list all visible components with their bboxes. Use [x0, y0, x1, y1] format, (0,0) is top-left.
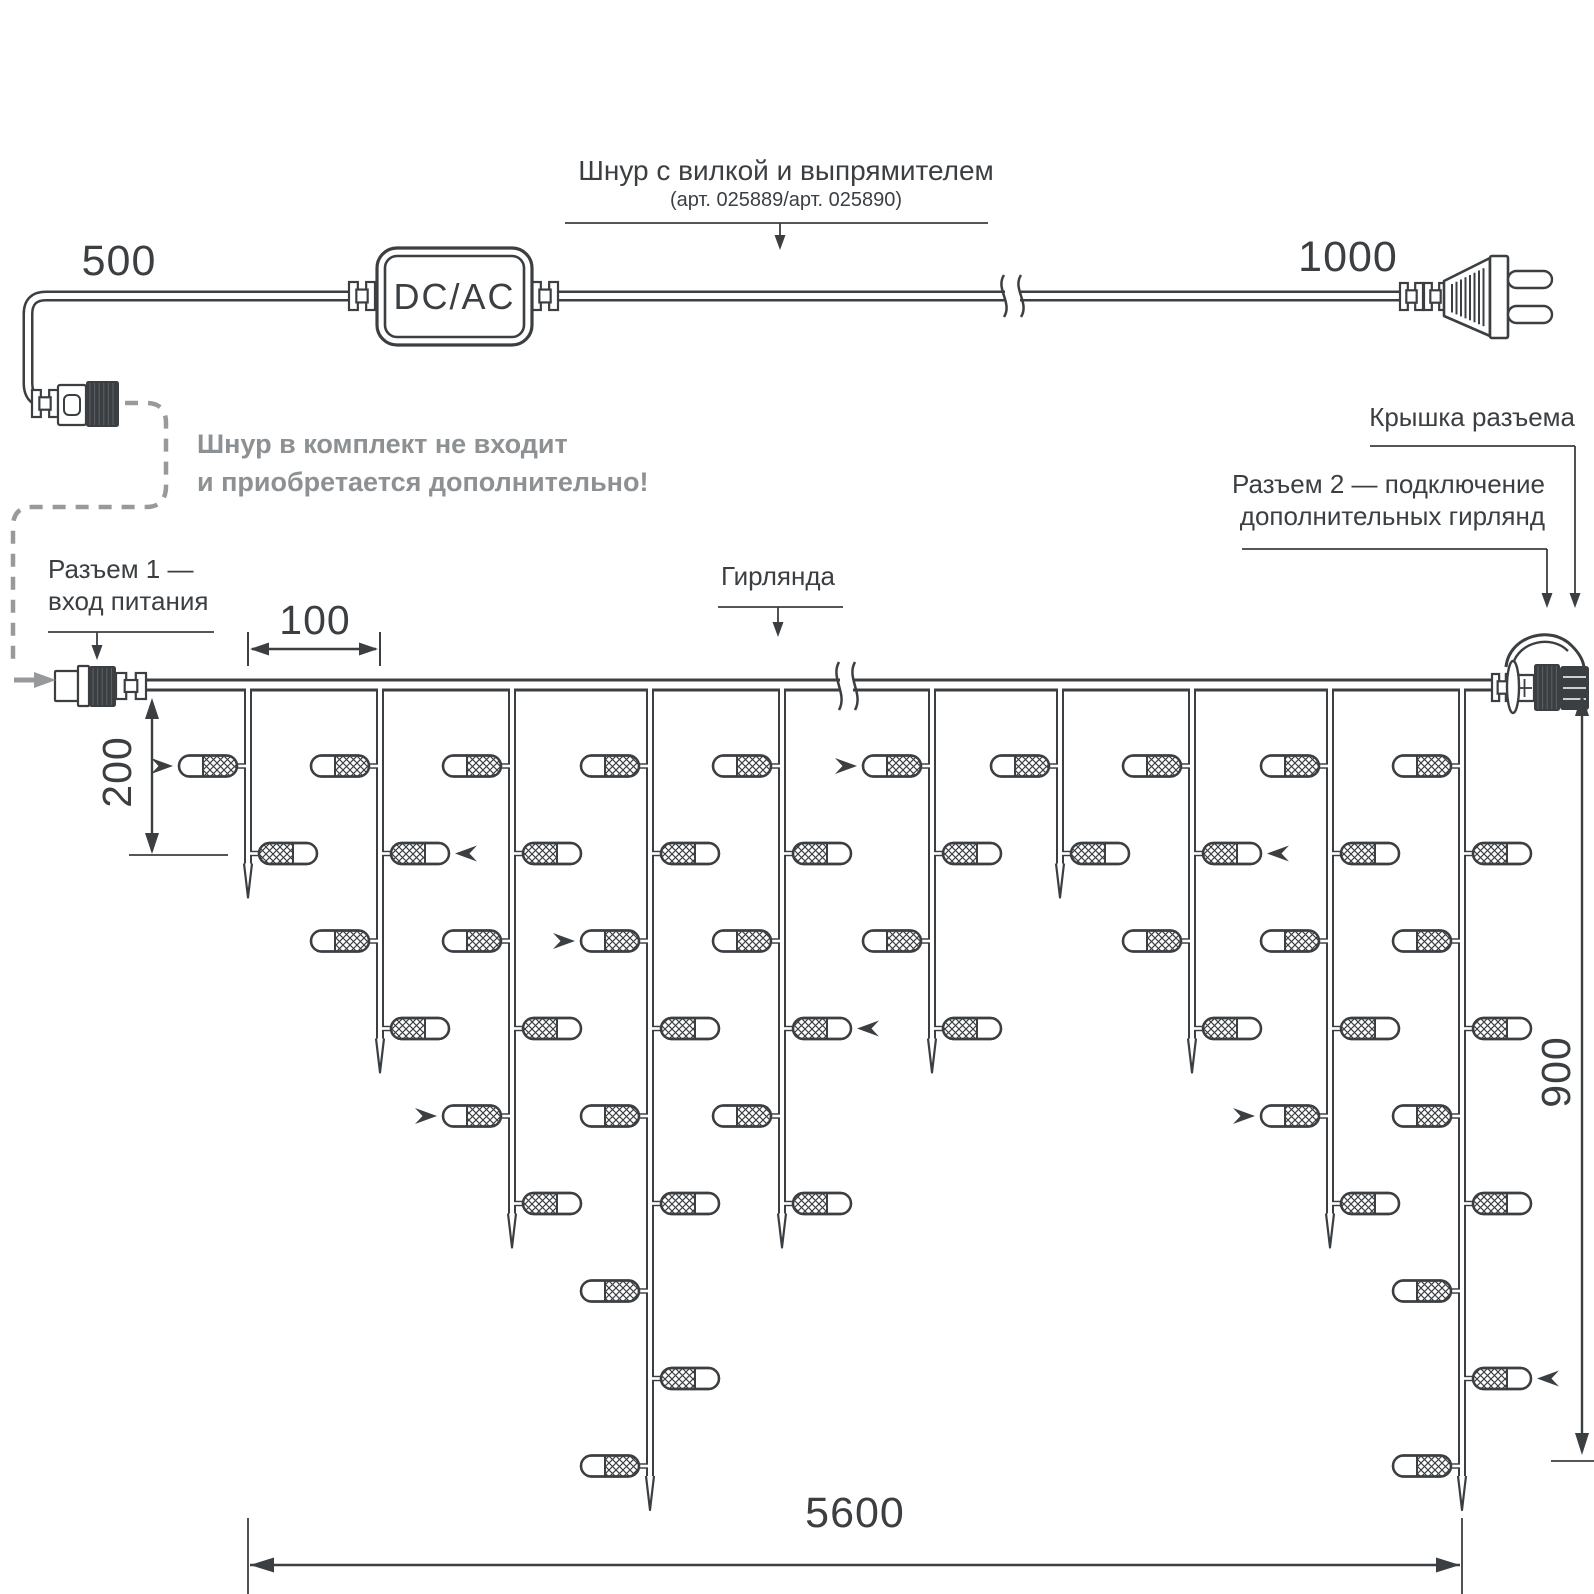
bulb-icon [581, 1106, 639, 1127]
bulb-icon [1393, 1281, 1451, 1302]
mains-plug-icon [1400, 256, 1552, 338]
bulb-icon [581, 931, 639, 952]
bulb-icon [1393, 1106, 1451, 1127]
bulb-icon [661, 1018, 719, 1039]
bulb-icon [1341, 843, 1399, 864]
flash-bulb-arrow-icon [553, 933, 575, 949]
bulb-icon [523, 1018, 581, 1039]
bulb-icon [523, 1193, 581, 1214]
gray-arrow-icon [34, 672, 56, 688]
bulb-icon [793, 1193, 851, 1214]
flash-bulb-arrow-icon [455, 846, 477, 862]
bulb-icon [1473, 1018, 1531, 1039]
bulb-icon [1393, 931, 1451, 952]
bulb-icon [1341, 1193, 1399, 1214]
bulb-icon [1473, 1368, 1531, 1389]
bulb-icon [391, 843, 449, 864]
bulb-icon [523, 843, 581, 864]
connector1-label-line1: Разъем 1 — [48, 554, 194, 585]
bulb-icon [581, 1281, 639, 1302]
bulb-icon [943, 1018, 1001, 1039]
bulb-icon [661, 1193, 719, 1214]
bulb-icon [179, 756, 237, 777]
dimension-900: 900 [1524, 1005, 1588, 1139]
drop-tips [244, 864, 1466, 1511]
bulb-icon [1393, 756, 1451, 777]
note-line-1: Шнур в комплект не входит [197, 429, 568, 460]
note-line-2: и приобретается дополнительно! [197, 467, 648, 498]
wire-break-icon [836, 660, 857, 710]
dashed-cord-path-icon [13, 403, 166, 688]
bulb-icon [661, 1368, 719, 1389]
cable-break-icon [1001, 272, 1023, 320]
cable-clamp-icon [532, 282, 558, 310]
connector-cap-label: Крышка разъема [1280, 402, 1575, 433]
cable-clamp-icon [32, 390, 58, 417]
bulb-icon [443, 1106, 501, 1127]
cable-clamp-icon [1400, 283, 1423, 310]
bulb-icon [1123, 931, 1181, 952]
cord-article-numbers: (арт. 025889/арт. 025890) [396, 189, 1176, 212]
power-cord-connector-icon [32, 381, 119, 427]
bulb-icon [581, 756, 639, 777]
bulb-icon [311, 931, 369, 952]
bulb-icon [991, 756, 1049, 777]
garland-input-connector-icon [55, 666, 146, 707]
bulb-icon [1473, 1193, 1531, 1214]
bulb-icon [793, 843, 851, 864]
dimension-5600: 5600 [770, 1489, 940, 1538]
flash-bulb-arrow-icon [1537, 1371, 1559, 1387]
technical-diagram: Шнур с вилкой и выпрямителем (арт. 02588… [0, 0, 1594, 1594]
bulb-icon [863, 756, 921, 777]
dimension-1000: 1000 [1282, 233, 1414, 282]
bulb-icon [1473, 843, 1531, 864]
flash-bulb-arrow-icon [1267, 846, 1289, 862]
bulb-icon [1261, 1106, 1319, 1127]
bulb-icon [443, 931, 501, 952]
bulb-icon [581, 1456, 639, 1477]
cord-title: Шнур с вилкой и выпрямителем [396, 155, 1176, 187]
bulb-icon [863, 931, 921, 952]
bulb-icon [793, 1018, 851, 1039]
flash-bulb-arrow-icon [835, 758, 857, 774]
flash-bulb-arrow-icon [415, 1108, 437, 1124]
dimension-500: 500 [54, 237, 184, 286]
bulb-icon [1071, 843, 1129, 864]
bulb-icon [1261, 931, 1319, 952]
bulb-icon [713, 756, 771, 777]
bulb-icon [713, 931, 771, 952]
dimension-200: 200 [85, 705, 149, 839]
garland-output-connector-icon [1492, 635, 1589, 713]
bulb-icon [1203, 843, 1261, 864]
bulb-icon [1341, 1018, 1399, 1039]
bulb-icon [1261, 756, 1319, 777]
connector1-label-line2: вход питания [48, 586, 208, 617]
bulb-icon [943, 843, 1001, 864]
flash-bulb-arrow-icon [151, 758, 173, 774]
cable-clamp-icon [349, 282, 375, 310]
connector2-label-line1: Разъем 2 — подключение [1190, 469, 1545, 500]
dimension-100: 100 [251, 597, 379, 644]
dc-ac-converter-label: DC/AC [377, 248, 532, 345]
bulb-icon [1123, 756, 1181, 777]
bulb-icon [391, 1018, 449, 1039]
flash-bulb-arrow-icon [1233, 1108, 1255, 1124]
bulb-icon [713, 1106, 771, 1127]
bulb-icon [259, 843, 317, 864]
garland-label: Гирлянда [665, 561, 891, 592]
cable-clamp-icon [116, 673, 146, 699]
bulb-icon [1393, 1456, 1451, 1477]
flash-bulb-arrow-icon [857, 1021, 879, 1037]
connector2-label-line2: дополнительных гирлянд [1190, 501, 1545, 532]
bulb-icon [1203, 1018, 1261, 1039]
bulb-icon [661, 843, 719, 864]
bulb-icon [311, 756, 369, 777]
bulb-icon [443, 756, 501, 777]
